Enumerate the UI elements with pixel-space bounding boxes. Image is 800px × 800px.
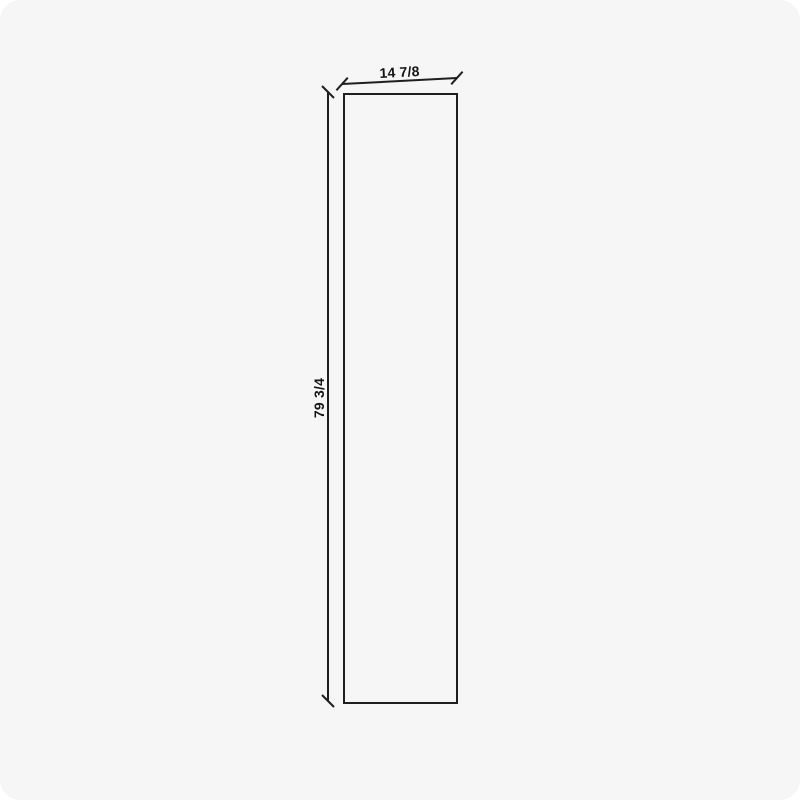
height-dimension-label: 79 3/4 (311, 378, 327, 418)
drawing-canvas: 14 7/8 79 3/4 (0, 0, 800, 800)
height-dimension: 79 3/4 (311, 86, 334, 707)
width-dimension: 14 7/8 (335, 61, 463, 91)
technical-drawing: 14 7/8 79 3/4 (0, 0, 800, 800)
width-dimension-label: 14 7/8 (379, 63, 420, 81)
panel-outline-rect (344, 94, 457, 703)
